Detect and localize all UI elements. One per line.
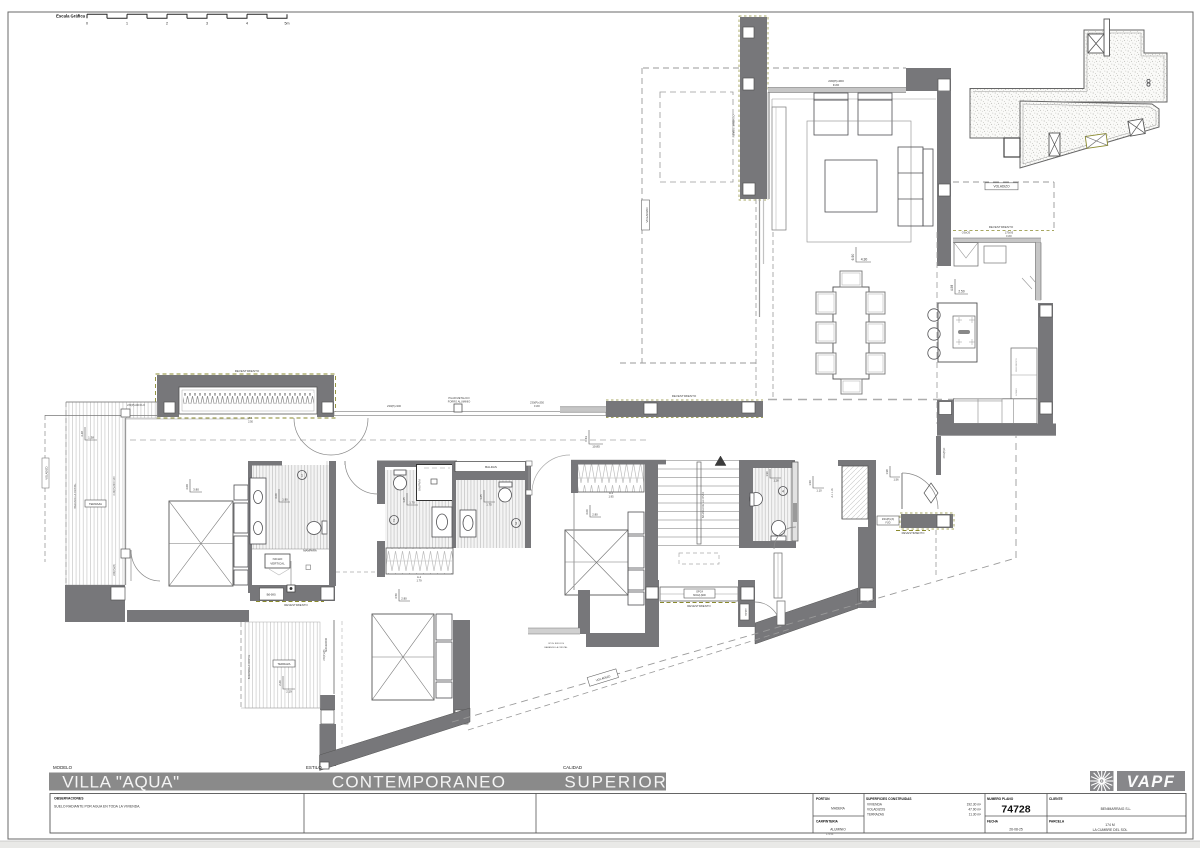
svg-text:Escala Gráfica: Escala Gráfica — [56, 14, 86, 19]
svg-text:BARANDILLA CRISTAL: BARANDILLA CRISTAL — [74, 483, 77, 509]
svg-text:TERRAZA: TERRAZA — [89, 502, 102, 506]
svg-text:2: 2 — [393, 519, 395, 523]
svg-text:FORRO ALUMINIO: FORRO ALUMINIO — [448, 399, 470, 403]
svg-text:SUELO RADIANTE POR AGUA EN TOD: SUELO RADIANTE POR AGUA EN TODA LA VIVIE… — [54, 805, 140, 809]
svg-text:192.30 m²: 192.30 m² — [967, 802, 981, 806]
svg-text:SUPERIOR: SUPERIOR — [564, 773, 667, 792]
svg-text:1.75: 1.75 — [486, 503, 492, 507]
svg-text:230x(B)90: 230x(B)90 — [944, 447, 946, 458]
svg-text:REVESTIMIENTO: REVESTIMIENTO — [284, 603, 308, 607]
svg-text:B(H)90: B(H)90 — [746, 608, 748, 616]
svg-text:HORNO: HORNO — [1016, 388, 1018, 396]
svg-text:NICHO: NICHO — [273, 557, 283, 561]
svg-text:1.50: 1.50 — [808, 480, 812, 486]
svg-text:1.90: 1.90 — [282, 498, 288, 502]
svg-text:BENIMARRAIG S.L.: BENIMARRAIG S.L. — [1101, 807, 1132, 811]
svg-text:230(P)x350: 230(P)x350 — [530, 401, 544, 405]
svg-text:VERTICAL: VERTICAL — [270, 562, 285, 566]
svg-text:TERRAZAS: TERRAZAS — [867, 812, 884, 816]
svg-text:FIJO: FIJO — [1006, 235, 1011, 238]
svg-text:FIJO: FIJO — [886, 523, 891, 525]
svg-text:2.19: 2.19 — [286, 690, 292, 694]
svg-text:11.30 m²: 11.30 m² — [969, 812, 981, 816]
svg-text:0: 0 — [86, 22, 88, 26]
svg-text:A-1 1.16: A-1 1.16 — [831, 488, 834, 498]
svg-text:1: 1 — [126, 22, 128, 26]
svg-text:3.80: 3.80 — [193, 488, 199, 492]
svg-text:6.90: 6.90 — [851, 254, 855, 261]
svg-text:CLIENTE: CLIENTE — [1049, 797, 1063, 801]
svg-text:LA CUMBRE DEL SOL: LA CUMBRE DEL SOL — [1093, 828, 1128, 832]
svg-text:4.00: 4.00 — [185, 484, 189, 490]
svg-text:SUPERFICIES CONSTRUIDAS: SUPERFICIES CONSTRUIDAS — [866, 797, 912, 801]
svg-text:BAJADA DE LA CINTA: BAJADA DE LA CINTA — [701, 492, 705, 519]
svg-text:1.38: 1.38 — [88, 435, 94, 439]
svg-text:MODELO: MODELO — [53, 765, 73, 770]
svg-text:2.80: 2.80 — [592, 513, 598, 517]
svg-text:PARCELA: PARCELA — [1049, 820, 1065, 824]
svg-text:ESTILO: ESTILO — [306, 765, 322, 770]
svg-text:OBSERVACIONES: OBSERVACIONES — [54, 797, 84, 801]
svg-text:CONTEMPORANEO: CONTEMPORANEO — [332, 773, 506, 792]
svg-text:230(P)x(B): 230(P)x(B) — [324, 649, 326, 660]
svg-text:VOLADIZOS: VOLADIZOS — [867, 807, 885, 811]
svg-text:2: 2 — [166, 22, 168, 26]
svg-text:CALIDAD: CALIDAD — [563, 765, 582, 770]
svg-text:BARANDILLA CRISTAL: BARANDILLA CRISTAL — [248, 654, 251, 679]
svg-text:BALDAS: BALDAS — [485, 465, 497, 469]
svg-text:TERRAZA: TERRAZA — [277, 662, 290, 666]
svg-text:2.80: 2.80 — [401, 597, 407, 601]
svg-text:1.56: 1.56 — [893, 478, 899, 482]
svg-text:VAPF: VAPF — [1127, 773, 1176, 791]
svg-text:1.95: 1.95 — [608, 495, 614, 499]
svg-text:1.65: 1.65 — [479, 494, 483, 500]
svg-text:174 M: 174 M — [1105, 823, 1115, 827]
svg-text:3.00: 3.00 — [585, 509, 589, 515]
svg-text:230(P)x300: 230(P)x300 — [387, 404, 401, 408]
svg-text:FIJO: FIJO — [534, 404, 540, 408]
svg-text:1.98: 1.98 — [885, 469, 889, 475]
svg-text:230x(P)x(X): 230x(P)x(X) — [882, 519, 894, 521]
svg-text:FIJO: FIJO — [833, 83, 840, 87]
svg-text:ALUMINIO: ALUMINIO — [830, 828, 846, 832]
svg-text:FECHA: FECHA — [987, 820, 999, 824]
svg-text:OSxOS: OSxOS — [962, 232, 971, 235]
svg-text:MAMPARA: MAMPARA — [419, 479, 422, 491]
svg-text:PORTON: PORTON — [816, 797, 830, 801]
svg-text:4.30: 4.30 — [861, 258, 868, 262]
svg-text:PILAR METALICO: PILAR METALICO — [448, 396, 469, 400]
svg-text:26-08-25: 26-08-25 — [1009, 828, 1023, 832]
svg-text:1.28: 1.28 — [773, 479, 779, 483]
svg-text:174 64: 174 64 — [826, 833, 834, 836]
svg-text:CARPINTERIA: CARPINTERIA — [816, 820, 838, 824]
svg-text:74728: 74728 — [1001, 804, 1030, 816]
svg-text:VOLADIZO: VOLADIZO — [993, 185, 1010, 189]
svg-text:2.50: 2.50 — [248, 421, 253, 424]
svg-text:VOLADIZO: VOLADIZO — [45, 466, 49, 479]
svg-text:4: 4 — [782, 490, 784, 494]
svg-text:REVESTIMIENTO: REVESTIMIENTO — [235, 369, 260, 373]
svg-text:1.43: 1.43 — [584, 436, 588, 442]
svg-text:REVESTIMIENTO: REVESTIMIENTO — [902, 531, 926, 535]
svg-text:2.30(P)x400 FIJO: 2.30(P)x400 FIJO — [113, 476, 116, 495]
svg-text:4: 4 — [246, 22, 248, 26]
svg-text:REVESTIMIENTO: REVESTIMIENTO — [989, 225, 1014, 229]
svg-text:3: 3 — [515, 522, 517, 526]
svg-text:1.10: 1.10 — [816, 489, 822, 493]
svg-text:REVESTIMIENTO: REVESTIMIENTO — [672, 394, 697, 398]
svg-text:BARANDILLA CRISTAL: BARANDILLA CRISTAL — [544, 646, 568, 649]
svg-text:REVESTIMIENTO: REVESTIMIENTO — [687, 604, 711, 608]
svg-text:4.48: 4.48 — [80, 431, 84, 437]
svg-text:2.60: 2.60 — [278, 680, 282, 686]
svg-text:1: 1 — [301, 474, 303, 478]
svg-text:3: 3 — [206, 22, 208, 26]
svg-text:47.90 m²: 47.90 m² — [968, 807, 981, 811]
svg-text:REVESTIMIENTO: REVESTIMIENTO — [732, 114, 736, 138]
svg-text:230(P)x(B): 230(P)x(B) — [113, 564, 116, 576]
svg-text:5m: 5m — [285, 22, 290, 26]
svg-text:NUMERO PLANO: NUMERO PLANO — [987, 797, 1014, 801]
svg-text:VIVIENDA: VIVIENDA — [867, 802, 883, 806]
svg-text:OPCH BIFUJOS: OPCH BIFUJOS — [548, 643, 565, 645]
svg-text:1.65: 1.65 — [402, 497, 406, 503]
svg-text:MADERA: MADERA — [831, 807, 846, 811]
svg-text:A-1: A-1 — [609, 491, 614, 495]
svg-text:1.79: 1.79 — [416, 579, 422, 583]
svg-text:A-1: A-1 — [417, 575, 422, 579]
svg-text:600x(L)900: 600x(L)900 — [693, 594, 706, 597]
svg-text:1.90: 1.90 — [765, 471, 769, 477]
svg-text:B(H)90.: B(H)90. — [267, 593, 277, 597]
svg-text:FRIGORIFICO: FRIGORIFICO — [1016, 358, 1018, 372]
svg-text:1.70: 1.70 — [409, 501, 415, 505]
svg-text:230(P)x400 FLO: 230(P)x400 FLO — [127, 404, 145, 407]
svg-text:10.85: 10.85 — [592, 445, 600, 449]
svg-text:4.98: 4.98 — [950, 285, 954, 291]
svg-text:VILLA "AQUA": VILLA "AQUA" — [62, 773, 180, 792]
svg-text:VOLADIZO: VOLADIZO — [645, 207, 649, 223]
svg-text:3.50: 3.50 — [394, 593, 398, 599]
svg-text:2.50: 2.50 — [958, 289, 964, 293]
svg-text:3.00: 3.00 — [274, 493, 278, 499]
